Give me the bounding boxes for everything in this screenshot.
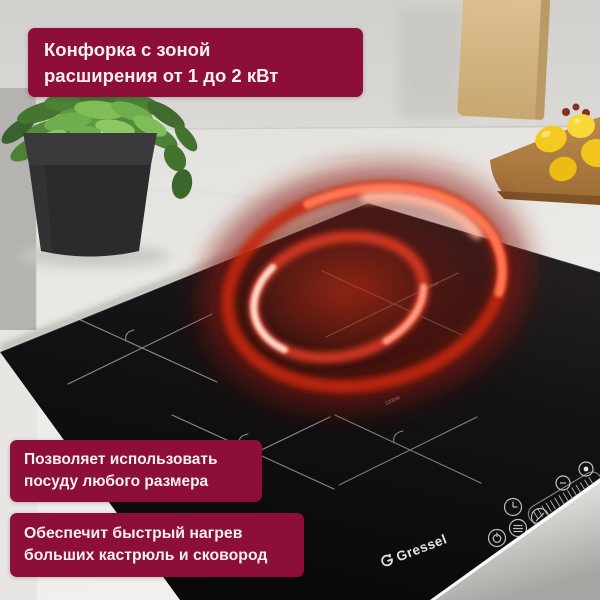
board-shadow <box>398 8 464 118</box>
product-image: 1200W 1200W <box>0 0 600 600</box>
callout-line: Позволяет использовать <box>24 449 248 471</box>
callout-line: посуду любого размера <box>24 471 248 493</box>
callout-line: Обеспечит быстрый нагрев <box>24 523 290 545</box>
callout-line: Конфорка с зоной <box>44 37 347 63</box>
plant-pot <box>23 133 157 257</box>
callout-line: расширения от 1 до 2 кВт <box>44 63 347 89</box>
callout-fast-heating: Обеспечит быстрый нагрев больших кастрюл… <box>10 513 304 577</box>
callout-power-range: Конфорка с зоной расширения от 1 до 2 кВ… <box>28 28 363 97</box>
cutting-board-standing <box>457 0 550 120</box>
callout-any-cookware: Позволяет использовать посуду любого раз… <box>10 440 262 502</box>
callout-line: больших кастрюль и сковород <box>24 545 290 567</box>
